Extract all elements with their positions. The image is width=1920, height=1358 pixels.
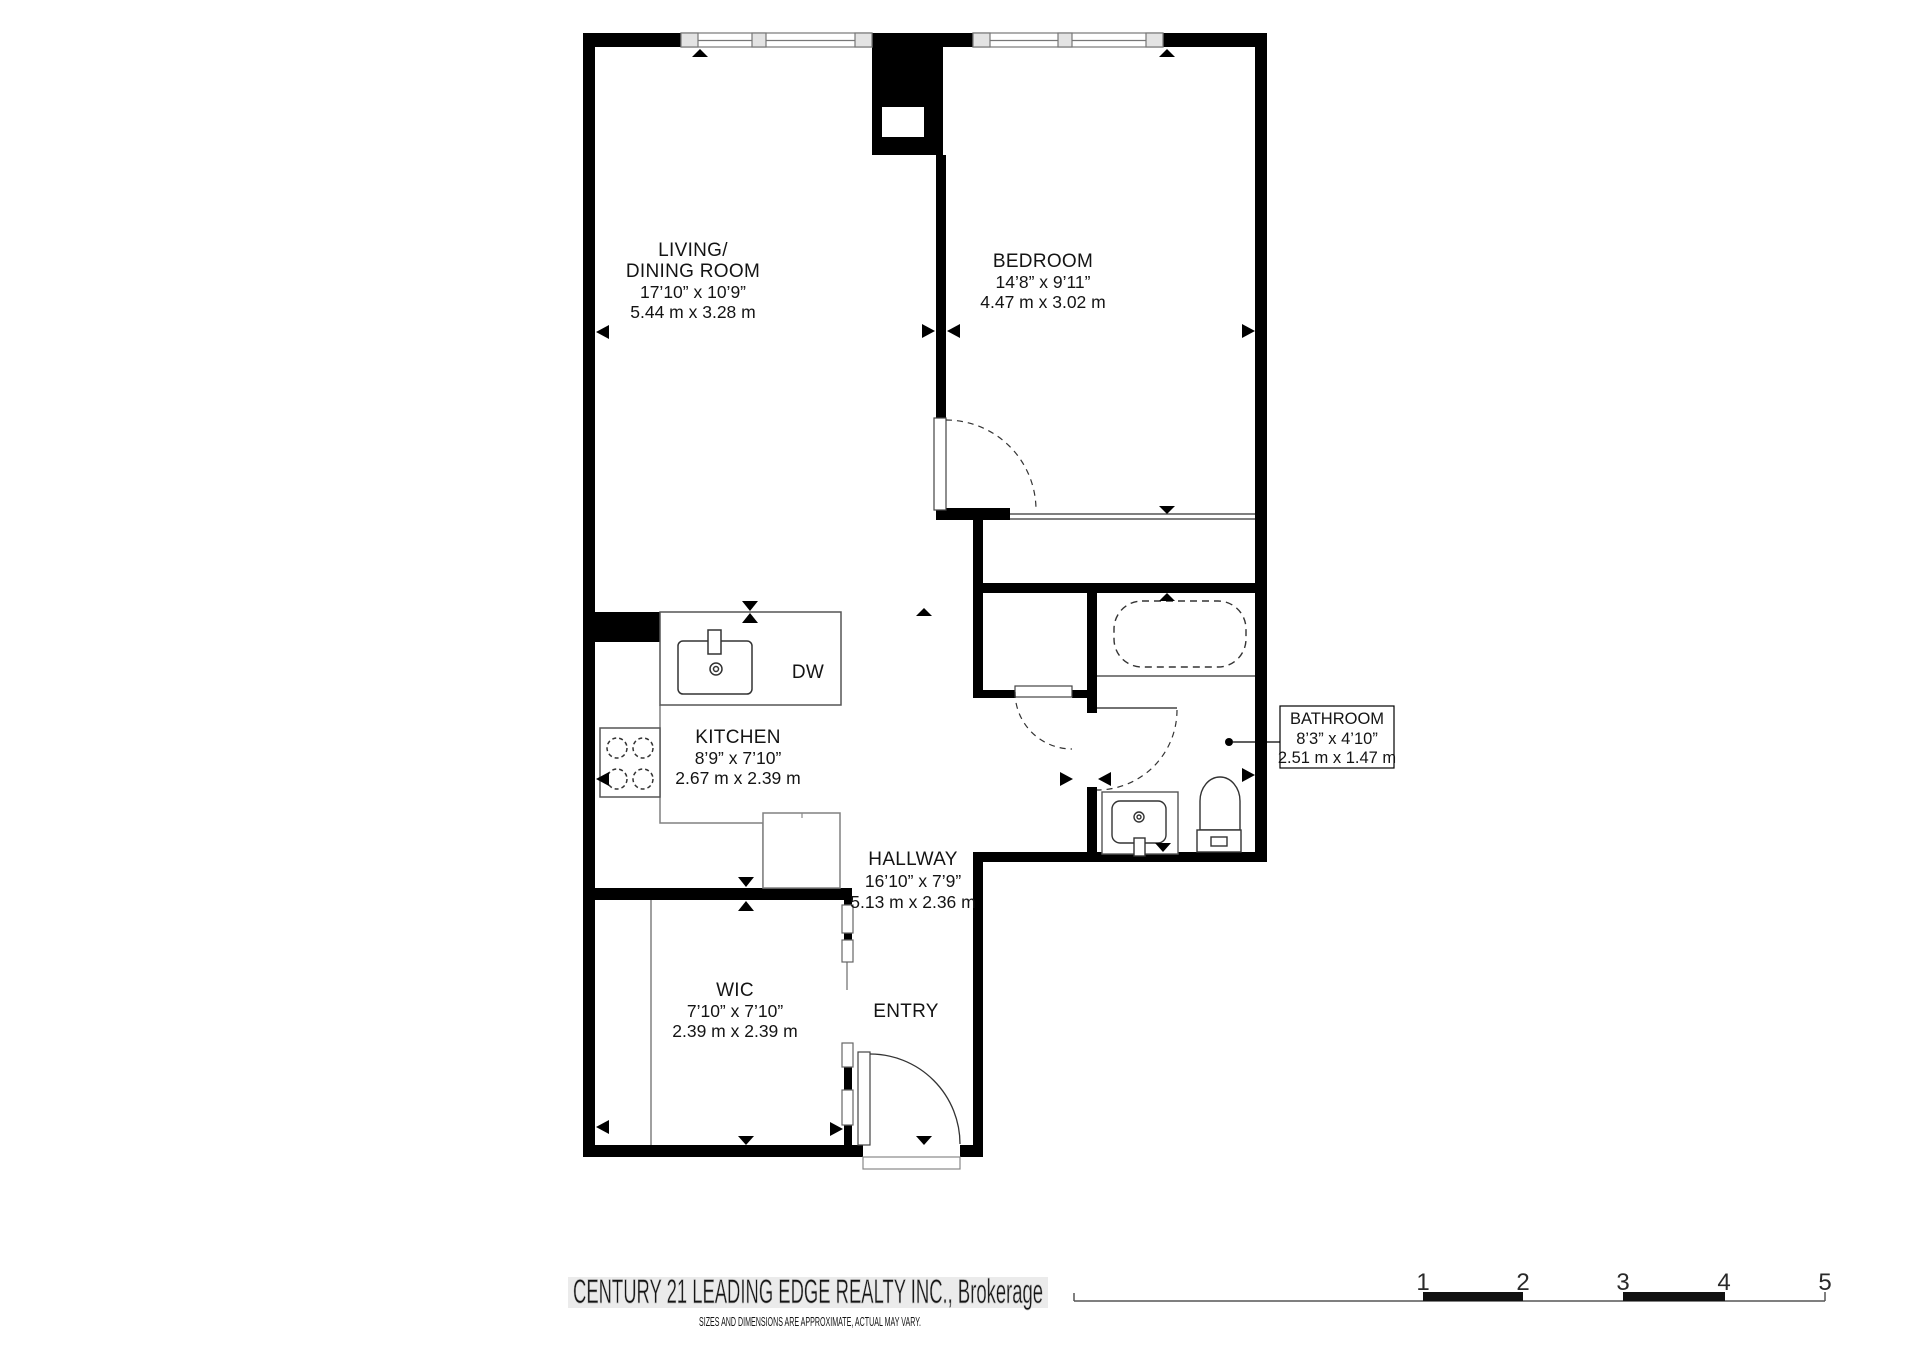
- wall-kitchen-stub: [595, 612, 662, 642]
- living-name-2: DINING ROOM: [626, 261, 760, 282]
- bedroom-dim-imperial: 14’8” x 9’11”: [995, 272, 1090, 292]
- wic-name: WIC: [716, 980, 754, 1001]
- scale-tick-1: 1: [1416, 1269, 1429, 1296]
- living-room-label: LIVING/ DINING ROOM 17’10” x 10’9” 5.44 …: [626, 240, 760, 322]
- direction-marker-icons: [596, 49, 1255, 1145]
- bathroom-dim-metric: 2.51 m x 1.47 m: [1278, 749, 1396, 767]
- marker-right-icon: [830, 1122, 843, 1136]
- walls: [583, 33, 1267, 1157]
- entry-door-opening: [863, 1145, 960, 1157]
- marker-right-icon: [1060, 772, 1073, 786]
- kitchen-dim-metric: 2.67 m x 2.39 m: [675, 768, 800, 788]
- wall-right: [1255, 33, 1267, 862]
- marker-up-icon: [738, 901, 754, 911]
- marker-up-icon: [916, 608, 932, 616]
- scale-tick-4: 4: [1717, 1269, 1730, 1296]
- wall-slider-stub-2: [844, 933, 852, 940]
- wall-closet-bottom-left: [973, 690, 1015, 698]
- marker-right-icon: [1242, 768, 1255, 782]
- wall-bathroom-left-upper: [1087, 583, 1097, 713]
- marker-left-icon: [596, 1120, 609, 1134]
- floor-plan-svg: LIVING/ DINING ROOM 17’10” x 10’9” 5.44 …: [0, 0, 1920, 1358]
- marker-left-icon: [596, 325, 609, 339]
- wic-dim-imperial: 7’10” x 7’10”: [687, 1001, 783, 1021]
- bedroom-dim-metric: 4.47 m x 3.02 m: [980, 292, 1105, 312]
- bedroom-south-opening: [1010, 514, 1255, 519]
- bedroom-door: [934, 418, 1036, 510]
- marker-down-icon: [738, 877, 754, 887]
- bathroom-name: BATHROOM: [1290, 710, 1384, 728]
- wic-dim-metric: 2.39 m x 2.39 m: [672, 1021, 797, 1041]
- kitchen-name: KITCHEN: [695, 727, 781, 748]
- wall-column-notch: [872, 47, 943, 155]
- marker-down-icon: [738, 1136, 754, 1145]
- bathroom-callout: BATHROOM 8’3” x 4’10” 2.51 m x 1.47 m: [1225, 706, 1396, 768]
- wic-label: WIC 7’10” x 7’10” 2.39 m x 2.39 m: [672, 980, 797, 1041]
- brand-watermark: CENTURY 21 LEADING EDGE REALTY INC., Bro…: [573, 1273, 1043, 1311]
- window-living: [681, 33, 872, 47]
- entry-door-sill: [863, 1157, 960, 1169]
- bedroom-door-arc: [946, 420, 1036, 510]
- wall-kitchen-wic-divider: [583, 888, 847, 900]
- wall-left: [583, 33, 595, 1157]
- scale-tick-3: 3: [1616, 1269, 1629, 1296]
- scale-tick-2: 2: [1516, 1269, 1529, 1296]
- marker-left-icon: [947, 324, 960, 338]
- marker-down-icon: [916, 1136, 932, 1145]
- footer: CENTURY 21 LEADING EDGE REALTY INC., Bro…: [568, 1273, 1048, 1329]
- bedroom-name: BEDROOM: [993, 251, 1093, 272]
- hallway-dim-metric: 5.13 m x 2.36 m: [850, 892, 975, 912]
- living-name-1: LIVING/: [658, 240, 728, 261]
- marker-up-icon: [1159, 593, 1175, 601]
- wall-hall-closet-left: [973, 514, 983, 698]
- marker-right-icon: [1242, 324, 1255, 338]
- scale-tick-5: 5: [1818, 1269, 1831, 1296]
- kitchen-label: KITCHEN 8’9” x 7’10” 2.67 m x 2.39 m: [675, 727, 800, 788]
- living-dim-metric: 5.44 m x 3.28 m: [630, 302, 755, 322]
- hall-closet-door: [1015, 686, 1072, 749]
- floor-plan-page: LIVING/ DINING ROOM 17’10” x 10’9” 5.44 …: [0, 0, 1920, 1358]
- scale-bar-segment: [1423, 1292, 1523, 1301]
- disclaimer-text: SIZES AND DIMENSIONS ARE APPROXIMATE, AC…: [699, 1315, 921, 1329]
- hall-closet-door-arc: [1015, 692, 1072, 749]
- toilet: [1197, 777, 1241, 852]
- stove: [600, 728, 660, 797]
- marker-right-icon: [922, 324, 935, 338]
- marker-down-icon: [1159, 506, 1175, 514]
- hallway-closet: [763, 813, 840, 888]
- kitchen-dim-imperial: 8’9” x 7’10”: [695, 748, 782, 768]
- wall-slider-stub-4: [844, 1125, 852, 1145]
- entry-label: ENTRY: [873, 1001, 939, 1022]
- dishwasher-label: DW: [792, 662, 824, 683]
- scale-bar: 1 2 3 4 5: [1074, 1269, 1832, 1301]
- wall-bathroom-top: [983, 583, 1255, 593]
- marker-left-icon: [1098, 772, 1111, 786]
- entry-door-arc: [870, 1054, 960, 1144]
- hallway-dim-imperial: 16’10” x 7’9”: [865, 871, 961, 891]
- bathroom-dim-imperial: 8’3” x 4’10”: [1296, 730, 1378, 748]
- kitchen-island: [660, 612, 841, 705]
- window-bedroom: [973, 33, 1163, 47]
- wall-bathroom-left-lower: [1087, 787, 1097, 862]
- hallway-label: HALLWAY 16’10” x 7’9” 5.13 m x 2.36 m: [850, 849, 975, 912]
- hallway-name: HALLWAY: [868, 849, 957, 870]
- callout-dot-icon: [1225, 738, 1233, 746]
- marker-up-icon: [1159, 49, 1175, 57]
- bedroom-label: BEDROOM 14’8” x 9’11” 4.47 m x 3.02 m: [980, 251, 1105, 312]
- wall-slider-stub-3: [844, 1067, 852, 1090]
- marker-down-icon: [742, 601, 758, 611]
- living-dim-imperial: 17’10” x 10’9”: [640, 282, 746, 302]
- bathtub: [1114, 601, 1246, 667]
- scale-bar-segment: [1623, 1292, 1725, 1301]
- marker-up-icon: [692, 49, 708, 57]
- wall-living-bedroom-divider: [936, 155, 946, 418]
- column-notch-cutout: [882, 107, 924, 137]
